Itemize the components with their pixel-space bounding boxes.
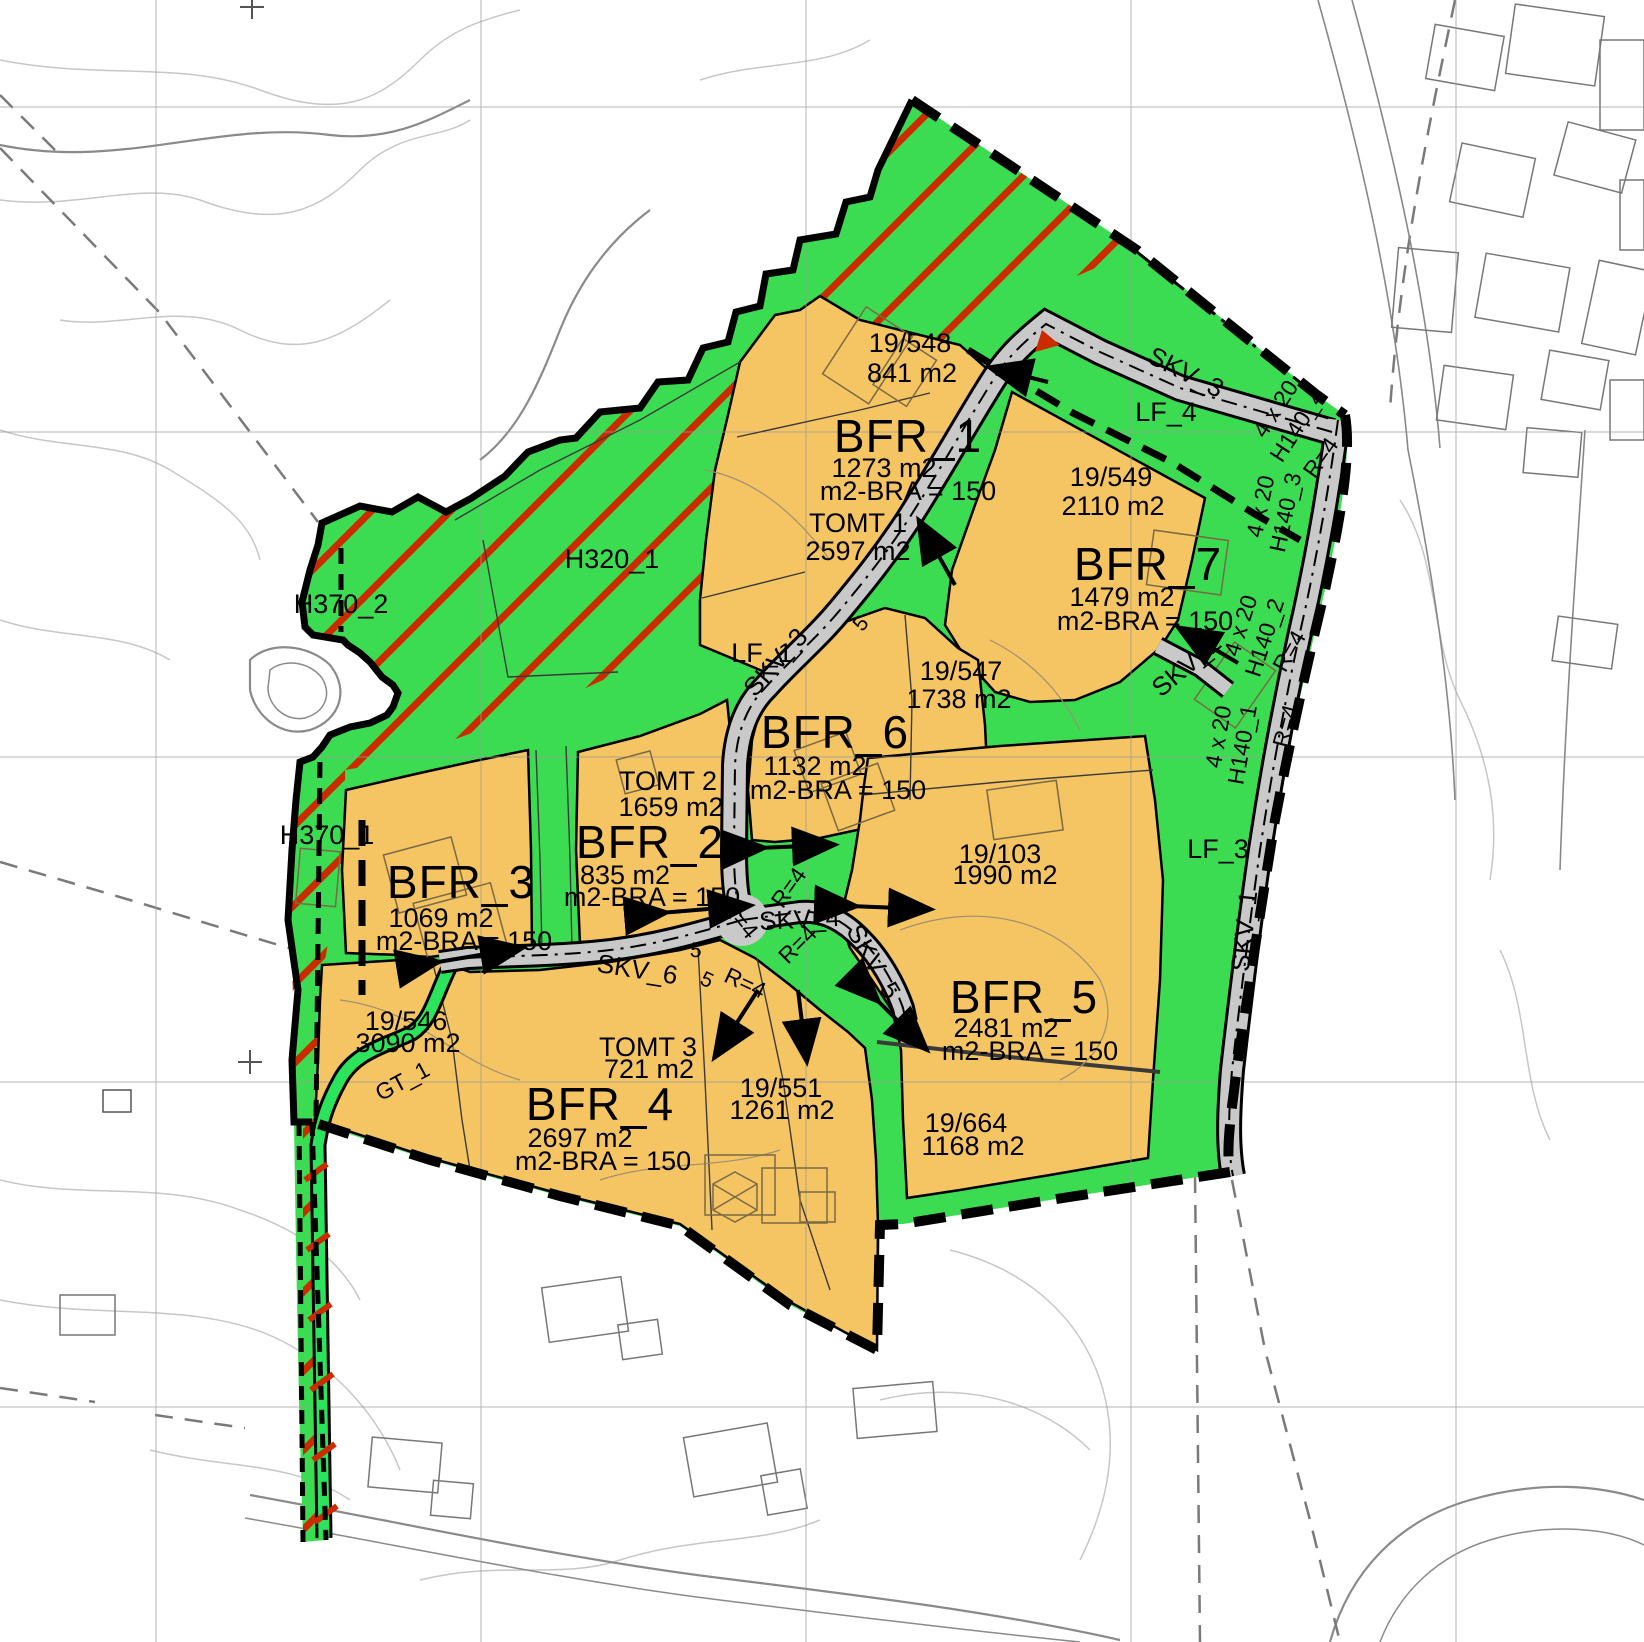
hazard-h370-1-label: H370_1 xyxy=(280,820,375,850)
parcel-19-549-area: 2110 m2 xyxy=(1061,491,1164,521)
zoning-plan-map: 19/548 841 m2 BFR_1 1273 m2 m2-BRA = 150… xyxy=(0,0,1644,1642)
zoning-plan-page: 19/548 841 m2 BFR_1 1273 m2 m2-BRA = 150… xyxy=(0,0,1644,1642)
parcel-19-664-area: 1168 m2 xyxy=(921,1131,1024,1161)
parcel-19-548-id: 19/548 xyxy=(869,328,952,358)
zone-bfr6-bra: m2-BRA = 150 xyxy=(750,775,926,805)
hazard-h320-1-label: H320_1 xyxy=(565,544,660,574)
zone-bfr5-bra: m2-BRA = 150 xyxy=(942,1036,1118,1066)
parcel-19-551-area: 1261 m2 xyxy=(729,1095,834,1125)
background-roads xyxy=(1318,0,1585,870)
hazard-h370-2-label: H370_2 xyxy=(294,589,389,619)
parcel-19-547-area: 1738 m2 xyxy=(906,684,1011,714)
parcel-19-547-id: 19/547 xyxy=(920,656,1003,686)
zone-bfr3-bra: m2-BRA = 150 xyxy=(376,926,552,956)
parcel-19-103-area: 1990 m2 xyxy=(952,860,1057,890)
zone-bfr4-bra: m2-BRA = 150 xyxy=(515,1146,691,1176)
zone-bfr3-label: BFR_3 xyxy=(387,856,535,908)
zone-bfr2-bra: m2-BRA = 150 xyxy=(564,882,740,912)
lot-tomt1-label: TOMT 1 xyxy=(809,508,907,538)
green-lf4-label: LF_4 xyxy=(1135,397,1197,427)
zone-bfr1-bra: m2-BRA = 150 xyxy=(820,476,996,506)
survey-marks xyxy=(103,0,264,1112)
parcel-19-548-area: 841 m2 xyxy=(867,358,957,388)
green-lf3-label: LF_3 xyxy=(1187,834,1249,864)
lot-tomt1-area: 2597 m2 xyxy=(805,536,910,566)
parcel-19-546-area: 3090 m2 xyxy=(355,1028,460,1058)
parcel-19-549-id: 19/549 xyxy=(1070,462,1153,492)
